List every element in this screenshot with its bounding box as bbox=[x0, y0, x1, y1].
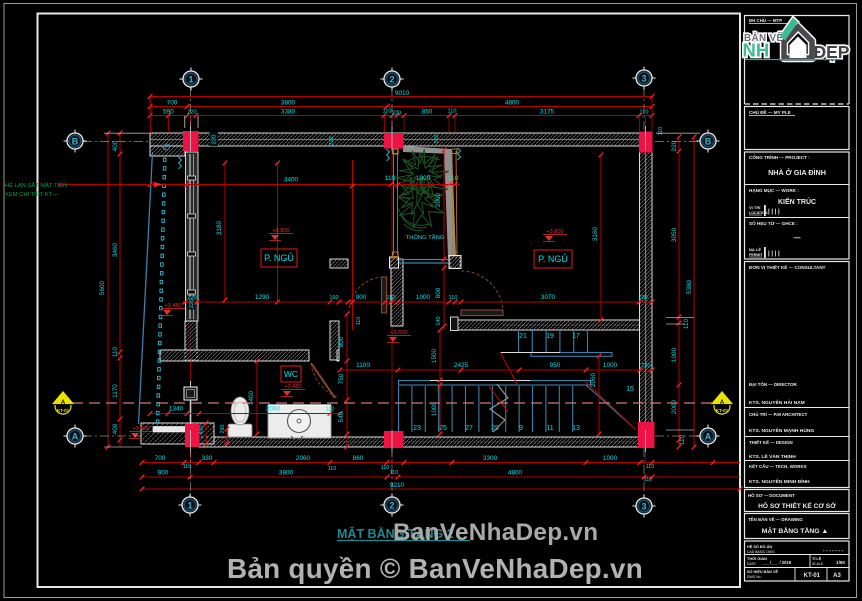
svg-text:13: 13 bbox=[572, 425, 580, 432]
svg-text:KT-01: KT-01 bbox=[716, 408, 729, 413]
svg-text:CÔNG TRÌNH — PROJECT :: CÔNG TRÌNH — PROJECT : bbox=[749, 153, 810, 160]
svg-text:A: A bbox=[61, 400, 66, 406]
svg-text:P. NGỦ: P. NGỦ bbox=[264, 252, 294, 263]
svg-text:WC: WC bbox=[284, 369, 298, 379]
svg-text:27: 27 bbox=[465, 425, 473, 432]
svg-text:110: 110 bbox=[658, 127, 664, 136]
svg-text:BanVeNhaDep.vn: BanVeNhaDep.vn bbox=[393, 519, 598, 546]
svg-text:1000: 1000 bbox=[416, 294, 431, 301]
svg-text:1340: 1340 bbox=[169, 406, 184, 413]
svg-text:23: 23 bbox=[413, 425, 421, 432]
svg-text:220: 220 bbox=[641, 363, 650, 369]
svg-text:1500: 1500 bbox=[431, 348, 438, 363]
svg-text:1000: 1000 bbox=[671, 347, 678, 362]
svg-text:3460: 3460 bbox=[112, 242, 119, 257]
svg-text:NẠ LỆ: NẠ LỆ bbox=[749, 247, 761, 252]
svg-text:NH: NH bbox=[743, 40, 770, 61]
svg-text:1170: 1170 bbox=[112, 384, 119, 398]
svg-text:11: 11 bbox=[546, 425, 553, 432]
svg-text:860: 860 bbox=[353, 455, 364, 462]
svg-text:2000: 2000 bbox=[671, 399, 678, 414]
svg-text:+3.480: +3.480 bbox=[164, 303, 181, 309]
svg-text:110: 110 bbox=[183, 464, 192, 470]
svg-text:A: A bbox=[705, 431, 712, 441]
svg-text:330: 330 bbox=[202, 455, 213, 462]
svg-text:ĐẠI TỔN — DIRECTOR: ĐẠI TỔN — DIRECTOR bbox=[749, 382, 798, 387]
svg-text:220: 220 bbox=[187, 295, 196, 301]
svg-text:25: 25 bbox=[439, 425, 447, 432]
svg-text:PERMIT: PERMIT bbox=[749, 253, 763, 257]
svg-text:B: B bbox=[705, 136, 712, 146]
svg-text:+3.800: +3.800 bbox=[272, 228, 289, 234]
svg-text:ĐƠN VỊ THIẾT KẾ — CONSULTANT: ĐƠN VỊ THIẾT KẾ — CONSULTANT bbox=[749, 264, 826, 270]
svg-text:1000: 1000 bbox=[415, 175, 430, 182]
svg-text:540: 540 bbox=[338, 411, 345, 422]
svg-text:220: 220 bbox=[329, 137, 335, 146]
svg-text:800: 800 bbox=[435, 287, 442, 298]
svg-text:| | | |: | | | | bbox=[768, 209, 780, 215]
svg-text:1: 1 bbox=[187, 500, 192, 510]
svg-text:SCALE: SCALE bbox=[812, 562, 824, 566]
svg-text:400: 400 bbox=[199, 426, 205, 435]
svg-text:5600: 5600 bbox=[99, 280, 106, 295]
svg-text:1000: 1000 bbox=[603, 362, 618, 369]
svg-text:15: 15 bbox=[626, 386, 634, 393]
svg-text:110: 110 bbox=[328, 466, 337, 472]
svg-text:3: 3 bbox=[641, 501, 646, 511]
svg-text:2: 2 bbox=[389, 74, 394, 84]
svg-text:3: 3 bbox=[641, 73, 646, 83]
svg-text:110: 110 bbox=[385, 175, 396, 182]
svg-text:19: 19 bbox=[546, 333, 554, 340]
svg-text:+3.800: +3.800 bbox=[132, 426, 149, 432]
svg-text:110: 110 bbox=[356, 317, 362, 326]
svg-text:B: B bbox=[72, 136, 79, 146]
svg-text:SỐ HẸU TỪ — GHCE :: SỐ HẸU TỪ — GHCE : bbox=[749, 220, 798, 226]
svg-text:- - - - - - -: - - - - - - - bbox=[823, 548, 843, 554]
svg-text:1290: 1290 bbox=[255, 294, 270, 301]
svg-text:SỐ HIỆU BẢN VẼ: SỐ HIỆU BẢN VẼ bbox=[747, 569, 778, 574]
svg-text:3400: 3400 bbox=[284, 177, 299, 184]
svg-text:110: 110 bbox=[112, 346, 119, 357]
svg-text:220: 220 bbox=[671, 140, 678, 151]
svg-text:2060: 2060 bbox=[266, 406, 281, 413]
svg-text:CAD BASIC DWG: CAD BASIC DWG bbox=[747, 550, 775, 554]
svg-text:9: 9 bbox=[519, 425, 523, 432]
svg-text:750: 750 bbox=[338, 373, 345, 384]
svg-text:4800: 4800 bbox=[505, 100, 520, 107]
svg-text:+3.480: +3.480 bbox=[284, 384, 301, 390]
svg-text:700: 700 bbox=[167, 100, 178, 107]
svg-text:KTS. NGUYỄN MẠNH HÙNG: KTS. NGUYỄN MẠNH HÙNG bbox=[749, 427, 814, 434]
svg-text:Bản quyền © BanVeNhaDep.vn: Bản quyền © BanVeNhaDep.vn bbox=[227, 553, 643, 584]
svg-text:KTS. NGUYỄN HẢI NAM: KTS. NGUYỄN HẢI NAM bbox=[749, 399, 805, 406]
svg-text:P. NGỦ: P. NGỦ bbox=[538, 253, 568, 264]
svg-text:2425: 2425 bbox=[454, 362, 469, 369]
svg-text:HỆ SỐ ĐỒ ÁN: HỆ SỐ ĐỒ ÁN bbox=[747, 544, 772, 549]
svg-text:110: 110 bbox=[383, 109, 392, 115]
svg-text:21: 21 bbox=[519, 333, 527, 340]
svg-text:A3: A3 bbox=[833, 573, 841, 579]
svg-text:| | | |: | | | | bbox=[768, 251, 780, 257]
svg-text:2060: 2060 bbox=[296, 455, 311, 462]
svg-text:290: 290 bbox=[220, 425, 226, 434]
svg-text:110: 110 bbox=[448, 109, 457, 115]
svg-text:HỒ SƠ — DOCUMENT: HỒ SƠ — DOCUMENT bbox=[748, 493, 795, 498]
svg-text:1000: 1000 bbox=[603, 455, 618, 462]
svg-text:5380: 5380 bbox=[686, 279, 693, 294]
svg-text:3070: 3070 bbox=[541, 294, 556, 301]
svg-text:220: 220 bbox=[392, 111, 401, 117]
svg-text:900: 900 bbox=[338, 336, 345, 347]
svg-text:900: 900 bbox=[158, 470, 169, 477]
svg-text:THÔNG TẦNG: THÔNG TẦNG bbox=[406, 234, 445, 241]
svg-text:2000: 2000 bbox=[435, 192, 442, 207]
svg-text:___ /___ / 2019: ___ /___ / 2019 bbox=[761, 560, 792, 565]
svg-text:590: 590 bbox=[163, 109, 174, 116]
svg-text:110: 110 bbox=[448, 175, 459, 182]
svg-text:CHỦ TRÌ — P.M ARCHITECT: CHỦ TRÌ — P.M ARCHITECT bbox=[749, 412, 808, 417]
svg-text:2: 2 bbox=[389, 500, 394, 510]
svg-text:17: 17 bbox=[572, 333, 580, 340]
svg-text:3160: 3160 bbox=[592, 226, 599, 241]
svg-text:+3.600: +3.600 bbox=[390, 330, 407, 336]
svg-text:220: 220 bbox=[638, 295, 647, 301]
svg-text:XEM CHI TIẾT KT—: XEM CHI TIẾT KT— bbox=[5, 191, 58, 198]
svg-text:HẠNG MỤC — WORK :: HẠNG MỤC — WORK : bbox=[749, 188, 799, 193]
svg-text:110: 110 bbox=[326, 407, 335, 413]
svg-text:THIẾT KẾ — DESIGN: THIẾT KẾ — DESIGN bbox=[749, 440, 793, 445]
svg-text:110: 110 bbox=[646, 464, 655, 470]
svg-text:KT-01: KT-01 bbox=[57, 408, 70, 413]
svg-text:A: A bbox=[72, 431, 79, 441]
svg-text:850: 850 bbox=[422, 109, 433, 116]
svg-text:3800: 3800 bbox=[281, 100, 296, 107]
svg-text:220: 220 bbox=[434, 135, 440, 144]
svg-text:DWG No.: DWG No. bbox=[747, 575, 762, 579]
svg-text:+3.800: +3.800 bbox=[546, 229, 563, 235]
svg-text:3800: 3800 bbox=[279, 470, 294, 477]
svg-text:1100: 1100 bbox=[356, 362, 370, 369]
svg-text:CHỦ ĐỀ — MY PLE: CHỦ ĐỀ — MY PLE bbox=[749, 109, 791, 115]
svg-text:HỆ LAN SẮT MẶT TIỀN: HỆ LAN SẮT MẶT TIỀN bbox=[5, 181, 67, 189]
svg-text:DATE: DATE bbox=[747, 562, 757, 566]
svg-text:4800: 4800 bbox=[508, 470, 523, 477]
svg-text:110: 110 bbox=[644, 477, 653, 483]
svg-text:150: 150 bbox=[386, 295, 395, 301]
svg-text:3300: 3300 bbox=[483, 455, 498, 462]
svg-text:220: 220 bbox=[212, 135, 218, 145]
svg-text:700: 700 bbox=[155, 455, 166, 462]
svg-text:3180: 3180 bbox=[216, 220, 223, 235]
svg-text:950: 950 bbox=[550, 362, 561, 369]
svg-text:1/50: 1/50 bbox=[836, 560, 845, 565]
svg-text:TỈ LỆ: TỈ LỆ bbox=[812, 556, 822, 561]
svg-text:A: A bbox=[720, 400, 725, 406]
svg-text:160: 160 bbox=[329, 295, 338, 301]
svg-text:TÊN BẢN VẼ — DRAWING: TÊN BẢN VẼ — DRAWING bbox=[748, 517, 803, 522]
svg-text:900: 900 bbox=[356, 294, 367, 301]
svg-text:140: 140 bbox=[436, 316, 442, 325]
svg-text:NHÀ Ở GIA ĐÌNH: NHÀ Ở GIA ĐÌNH bbox=[768, 168, 826, 177]
svg-text:220: 220 bbox=[187, 110, 196, 116]
svg-text:400: 400 bbox=[112, 423, 119, 434]
svg-text:9010: 9010 bbox=[395, 90, 410, 97]
svg-text:KẾT CẤU — TECH. WORKS: KẾT CẤU — TECH. WORKS bbox=[749, 464, 807, 469]
svg-text:400: 400 bbox=[112, 140, 119, 151]
svg-text:2060: 2060 bbox=[590, 372, 597, 387]
svg-text:29: 29 bbox=[491, 425, 499, 432]
svg-text:3175: 3175 bbox=[540, 109, 555, 116]
svg-text:ĐH CHỦ — MTP: ĐH CHỦ — MTP bbox=[749, 18, 782, 23]
svg-text:1: 1 bbox=[188, 74, 193, 84]
svg-text:110: 110 bbox=[390, 470, 399, 476]
svg-text:KT-01: KT-01 bbox=[804, 573, 821, 579]
svg-text:110: 110 bbox=[449, 295, 458, 301]
svg-text:110: 110 bbox=[381, 465, 390, 471]
svg-text:3380: 3380 bbox=[281, 109, 296, 116]
svg-text:VỊ TRÍ: VỊ TRÍ bbox=[749, 205, 761, 210]
svg-text:—: — bbox=[794, 235, 801, 242]
svg-text:3050: 3050 bbox=[671, 227, 678, 242]
